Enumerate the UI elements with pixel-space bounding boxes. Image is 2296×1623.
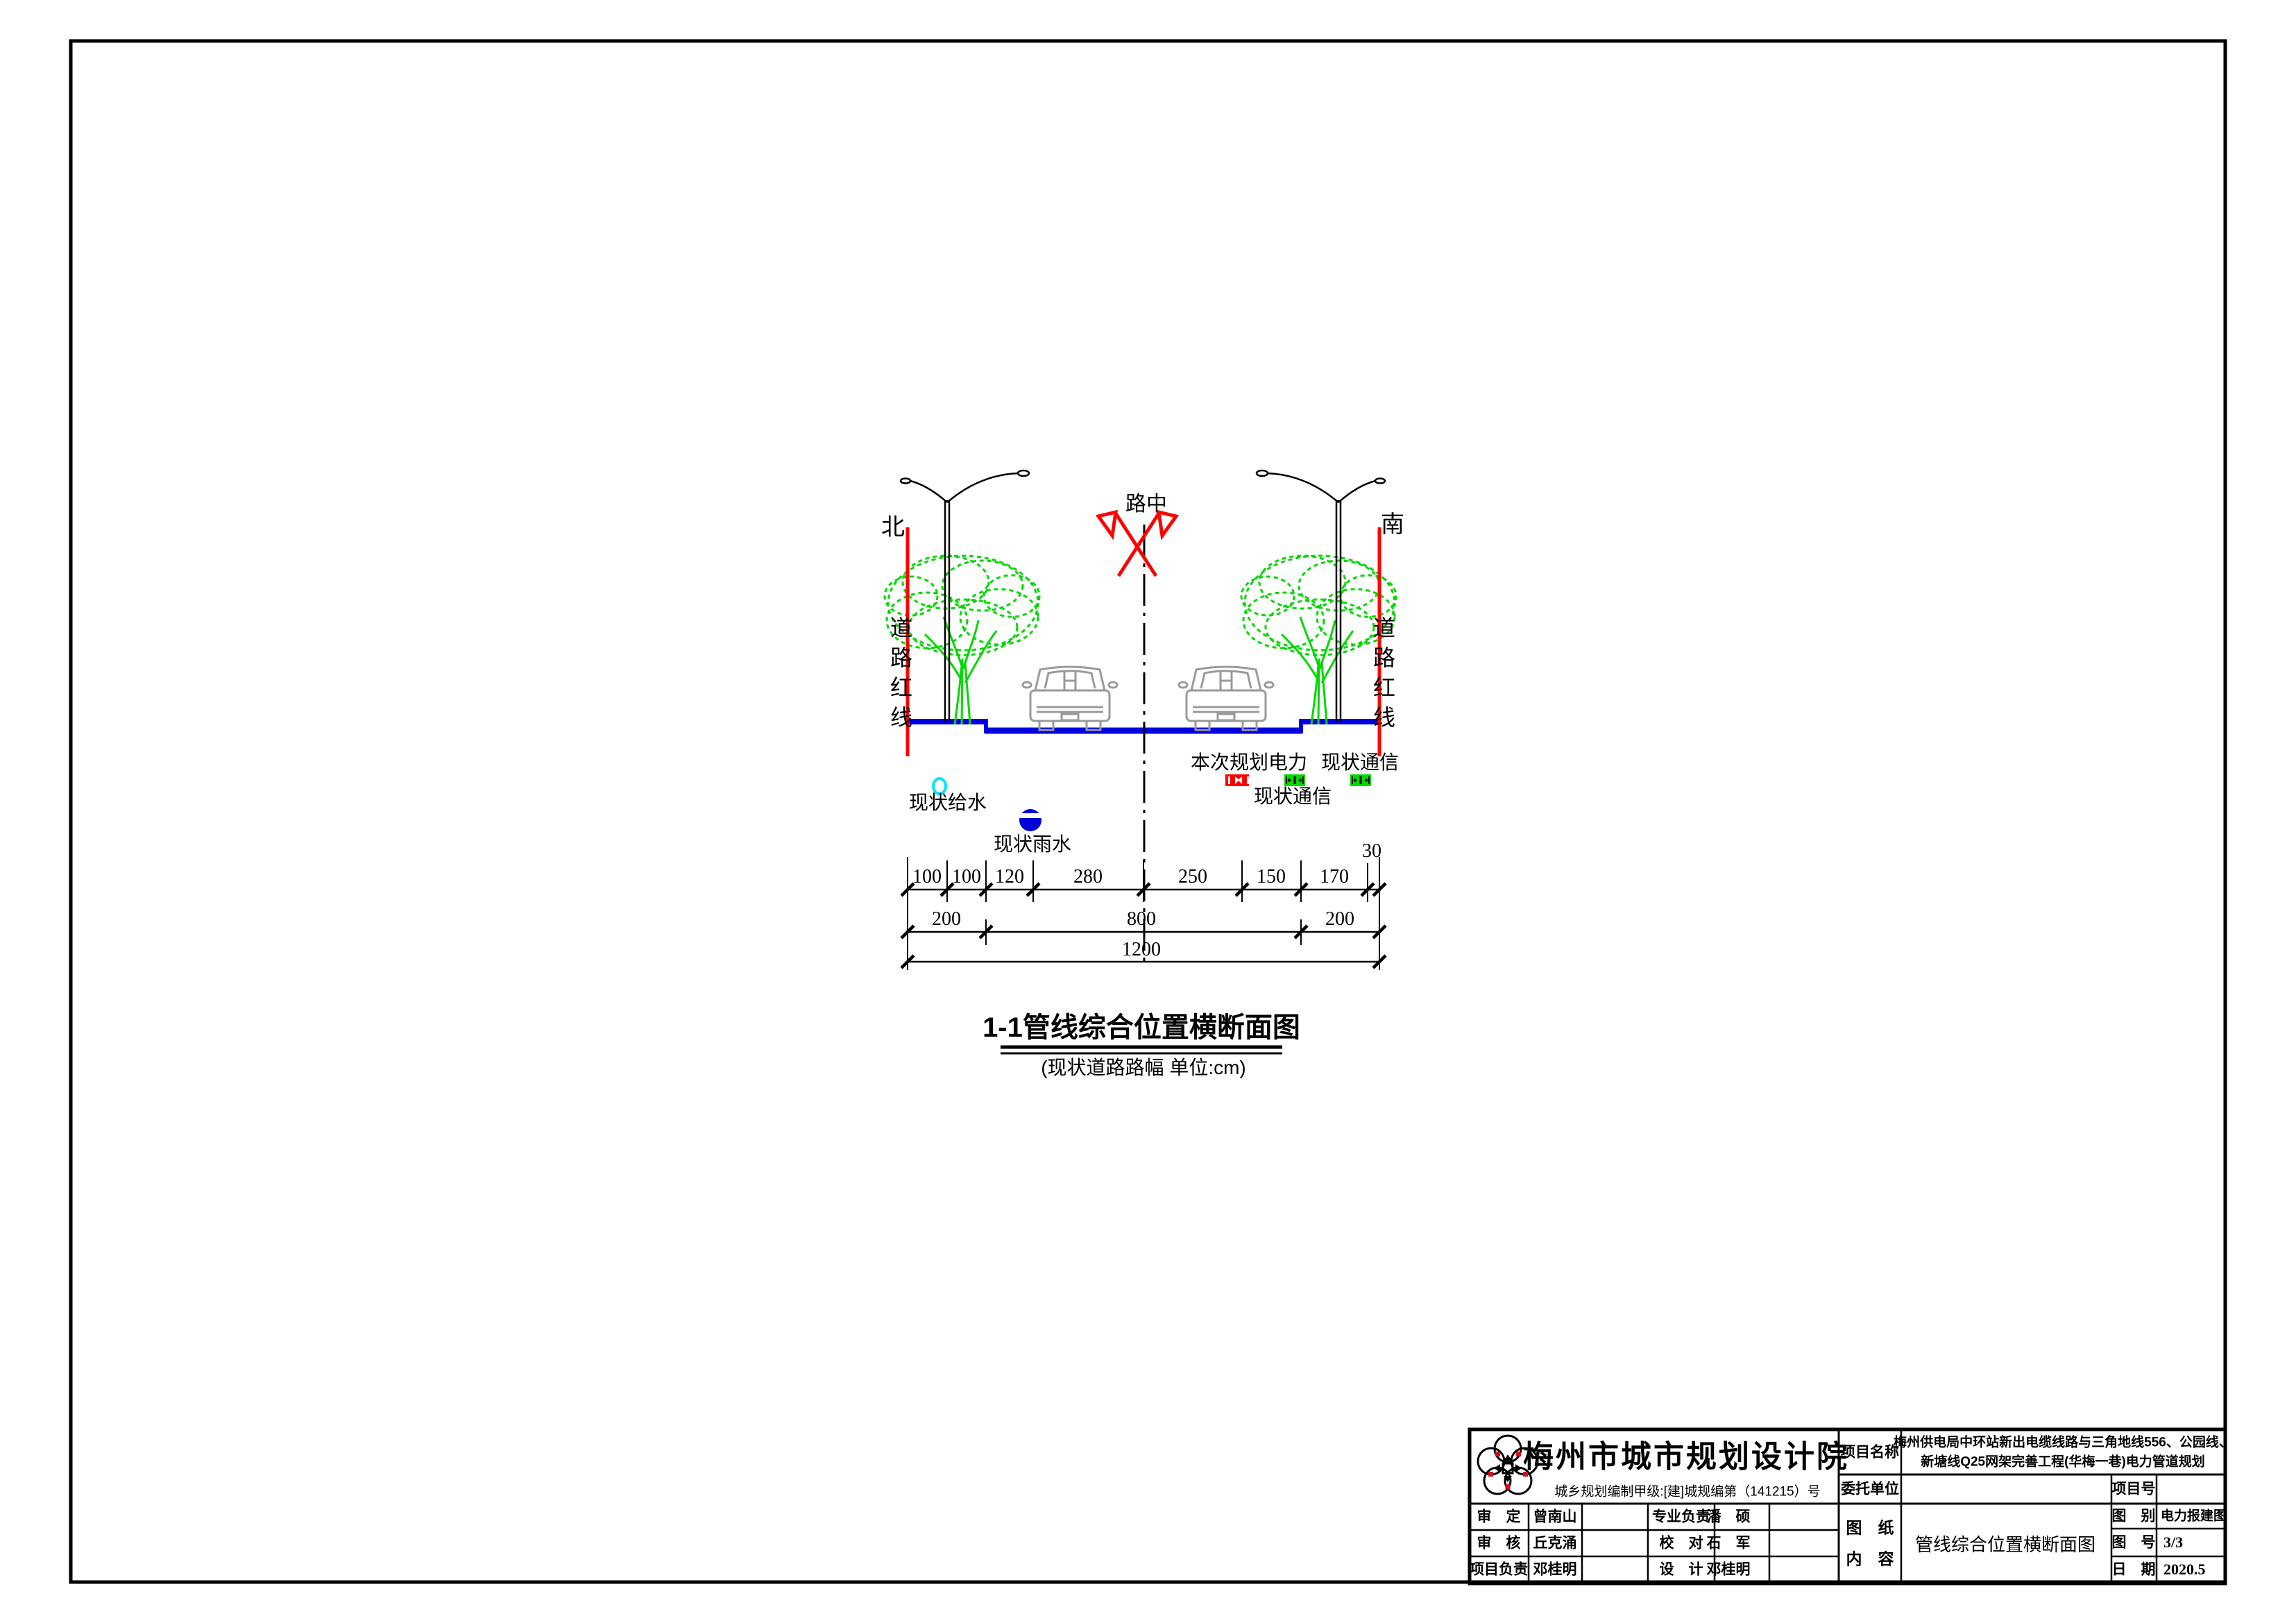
designer-label: 设 计 (1660, 1563, 1703, 1577)
sheet-content-value: 管线综合位置横断面图 (1915, 1536, 2095, 1554)
project-name-label: 项目名称 (1841, 1445, 1899, 1460)
redline-label-right: 道路红线 (1372, 616, 1394, 736)
approver-label: 审 定 (1477, 1510, 1521, 1524)
institute-name: 梅州市城市规划设计院 (1523, 1442, 1849, 1472)
reviewer-label: 审 核 (1477, 1536, 1521, 1551)
planned-power-box-icon (1225, 774, 1249, 786)
category-label: 图 别 (2112, 1509, 2156, 1524)
sheet-no-label: 图 号 (2112, 1536, 2156, 1550)
sheet-frame (71, 41, 2225, 1582)
project-name-line2: 新塘线Q25网架完善工程(华梅一巷)电力管道规划 (1921, 1456, 2205, 1469)
discipline-lead-name: 潘 硕 (1707, 1510, 1751, 1524)
proofreader-label: 校 对 (1660, 1536, 1703, 1551)
reviewer-name: 丘克涌 (1533, 1536, 1577, 1551)
center-flags-icon (1098, 512, 1176, 576)
client-label: 委托单位 (1841, 1482, 1899, 1497)
planned-power-label: 本次规划电力 (1191, 753, 1307, 772)
title-underline (1001, 1047, 1282, 1053)
project-lead-label: 项目负责 (1470, 1563, 1528, 1577)
proofreader-name: 石 军 (1707, 1536, 1751, 1551)
dim-row1-6: 170 (1320, 867, 1349, 887)
dim-total: 1200 (1122, 940, 1161, 960)
dim-row1-4: 250 (1178, 867, 1207, 887)
existing-comm-box-icon-1 (1284, 774, 1305, 786)
dim-row2-2: 200 (1325, 910, 1354, 929)
car-right (1179, 667, 1273, 730)
institute-license: 城乡规划编制甲级:[建]城规编第（141215）号 (1554, 1486, 1820, 1499)
discipline-lead-label: 专业负责 (1652, 1510, 1710, 1524)
street-lamp-right (1257, 470, 1385, 722)
dim-row1-5: 150 (1257, 867, 1286, 887)
sheet-no-value: 3/3 (2163, 1535, 2183, 1550)
date-label: 日 期 (2112, 1563, 2156, 1577)
dim-row1-2: 120 (995, 867, 1024, 887)
existing-comm-box-icon-2 (1350, 774, 1371, 786)
street-lamp-left (901, 470, 1029, 722)
dim-row1-0: 100 (912, 867, 942, 887)
project-name-line1: 梅州供电局中环站新出电缆线路与三角地线556、公园线、 (1894, 1436, 2232, 1450)
existing-comm-label-lower: 现状通信 (1254, 787, 1332, 806)
dim-row2-0: 200 (932, 910, 961, 929)
approver-name: 曾南山 (1533, 1510, 1577, 1524)
sheet-graphics (0, 0, 2296, 1623)
dim-row2-1: 800 (1127, 910, 1156, 929)
existing-storm-label: 现状雨水 (994, 835, 1071, 854)
redline-label-left: 道路红线 (889, 616, 911, 736)
project-lead-name: 邓桂明 (1533, 1563, 1577, 1577)
sheet-content-label-1: 图 纸 (1846, 1520, 1894, 1536)
storm-pipe-icon (1019, 809, 1042, 831)
section-title: 1-1管线综合位置横断面图 (983, 1014, 1300, 1042)
dim-row1-1: 100 (952, 867, 981, 887)
dim-offset-30: 30 (1362, 842, 1381, 861)
dim-row1-3: 280 (1073, 867, 1103, 887)
north-label: 北 (881, 516, 905, 539)
designer-name: 邓桂明 (1707, 1563, 1751, 1577)
existing-comm-label-upper: 现状通信 (1321, 753, 1399, 772)
category-value: 电力报建图 (2161, 1510, 2227, 1523)
section-subtitle: (现状道路路幅 单位:cm) (1041, 1058, 1246, 1078)
drawing-sheet: 北 南 道路红线 道路红线 路中 本次规划电力 现状通信 现状通信 现状给水 现… (0, 0, 2296, 1623)
project-no-label: 项目号 (2112, 1482, 2156, 1497)
date-value: 2020.5 (2163, 1562, 2206, 1577)
existing-water-label: 现状给水 (909, 793, 987, 813)
south-label: 南 (1381, 513, 1404, 536)
car-left (1023, 667, 1117, 730)
sheet-content-label-2: 内 容 (1846, 1552, 1894, 1567)
road-center-label: 路中 (1125, 494, 1167, 515)
